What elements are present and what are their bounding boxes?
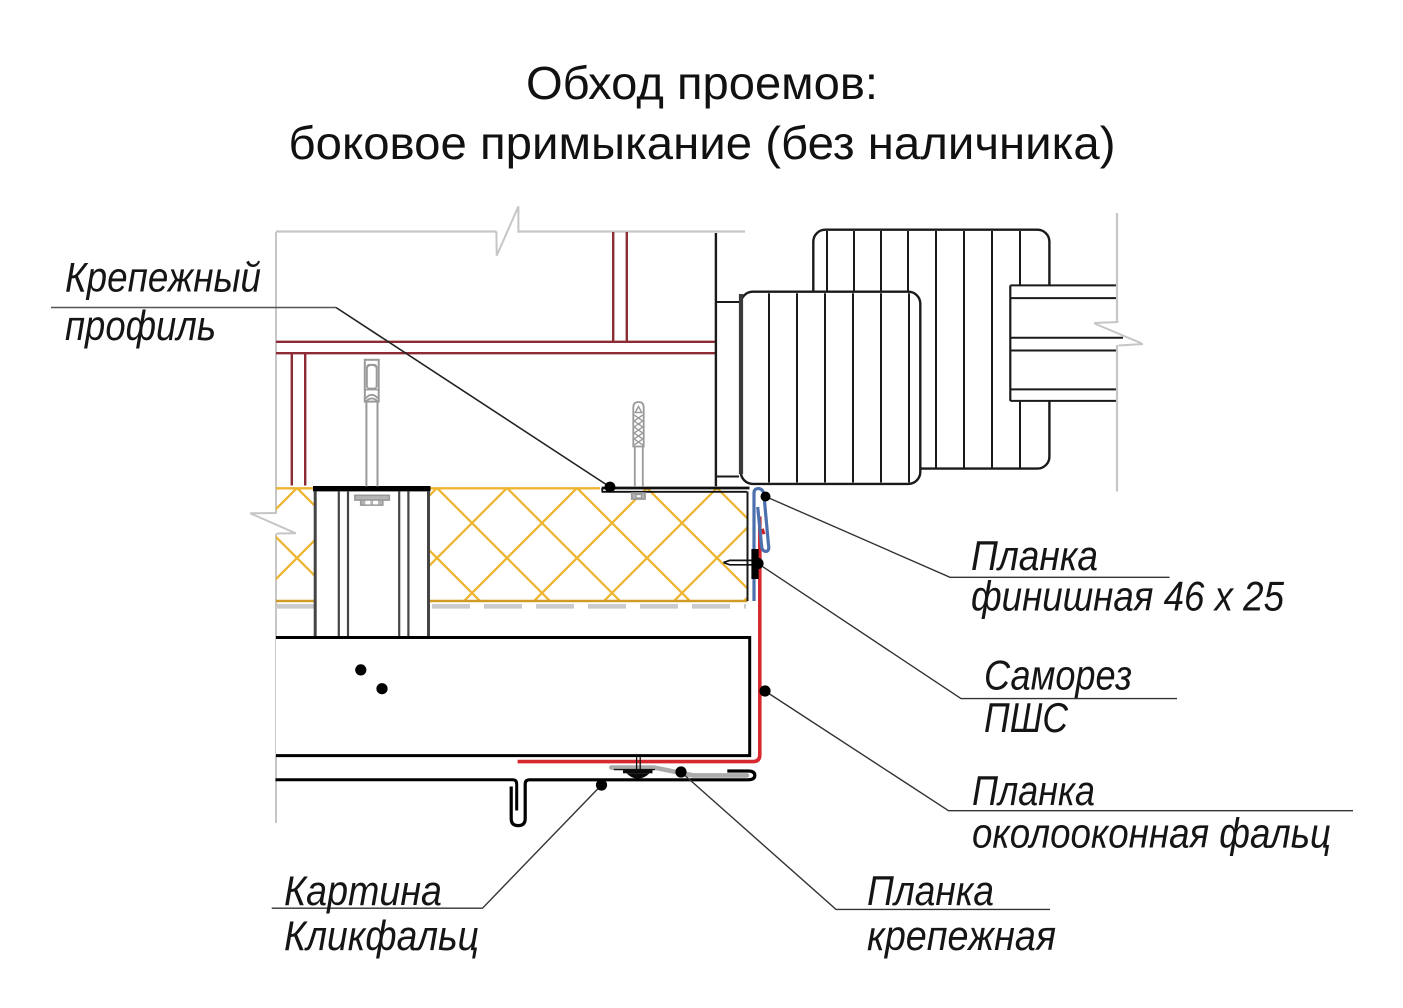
svg-text:Обход проемов:: Обход проемов: — [526, 57, 878, 109]
svg-text:Планка: Планка — [972, 767, 1095, 814]
svg-text:ПШС: ПШС — [984, 694, 1069, 741]
svg-text:Кликфальц: Кликфальц — [284, 912, 479, 959]
svg-text:Планка: Планка — [867, 867, 994, 914]
svg-text:Картина: Картина — [284, 867, 442, 914]
svg-text:боковое примыкание (без наличн: боковое примыкание (без наличника) — [289, 117, 1116, 169]
svg-text:околооконная фальц: околооконная фальц — [972, 810, 1331, 857]
svg-text:крепежная: крепежная — [867, 912, 1056, 959]
svg-text:Саморез: Саморез — [984, 652, 1132, 699]
svg-text:профиль: профиль — [65, 302, 216, 349]
svg-text:Крепежный: Крепежный — [65, 254, 261, 301]
svg-text:финишная 46 х 25: финишная 46 х 25 — [971, 573, 1285, 620]
